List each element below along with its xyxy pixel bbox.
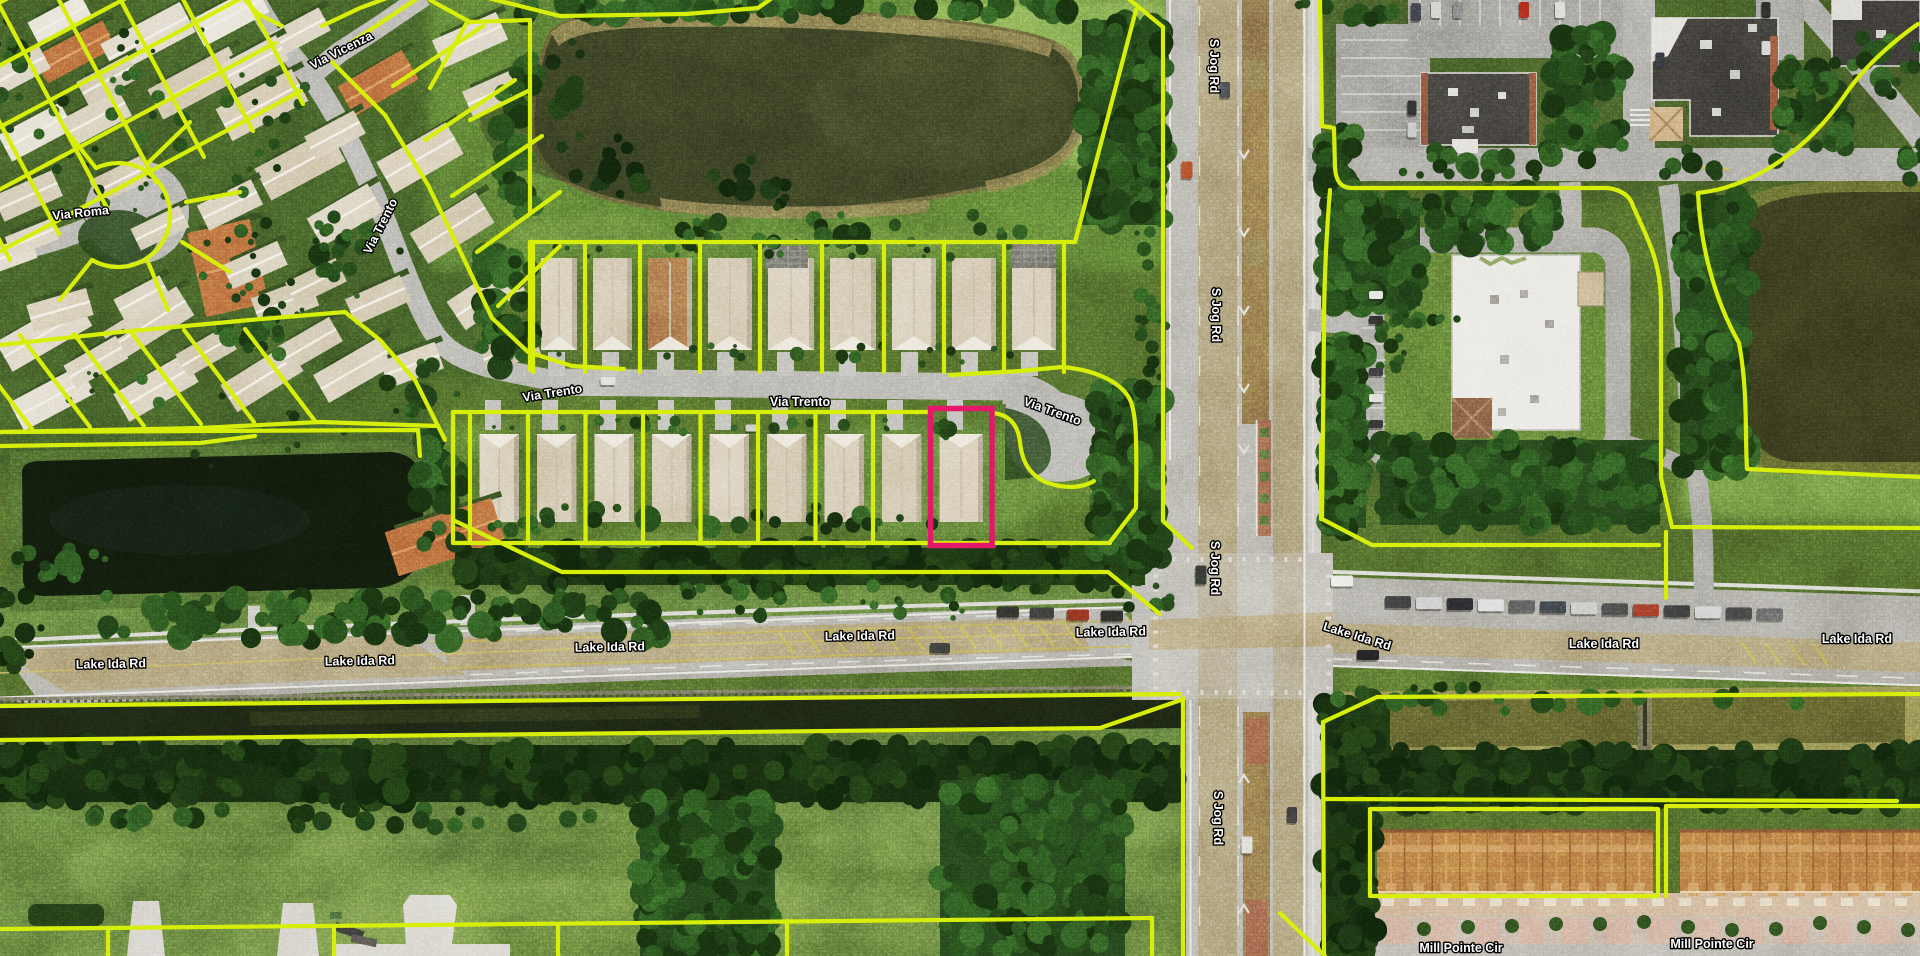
svg-text:Lake Ida Rd: Lake Ida Rd [76,656,146,671]
svg-text:S Jog Rd: S Jog Rd [1209,288,1223,342]
svg-text:S Jog Rd: S Jog Rd [1208,541,1222,595]
svg-text:Via Trento: Via Trento [770,395,831,409]
svg-text:Lake Ida Rd: Lake Ida Rd [825,628,895,643]
svg-text:S Jog Rd: S Jog Rd [1207,39,1221,93]
svg-text:Mill Pointe Cir: Mill Pointe Cir [1419,941,1502,955]
svg-text:Lake Ida Rd: Lake Ida Rd [325,653,395,668]
svg-text:Lake Ida Rd: Lake Ida Rd [1076,624,1146,639]
svg-text:Mill Pointe Cir: Mill Pointe Cir [1670,937,1753,951]
svg-text:S Jog Rd: S Jog Rd [1211,791,1225,845]
svg-text:Lake Ida Rd: Lake Ida Rd [575,639,645,654]
svg-text:Lake Ida Rd: Lake Ida Rd [1822,632,1892,646]
svg-text:Lake Ida Rd: Lake Ida Rd [1569,637,1639,651]
